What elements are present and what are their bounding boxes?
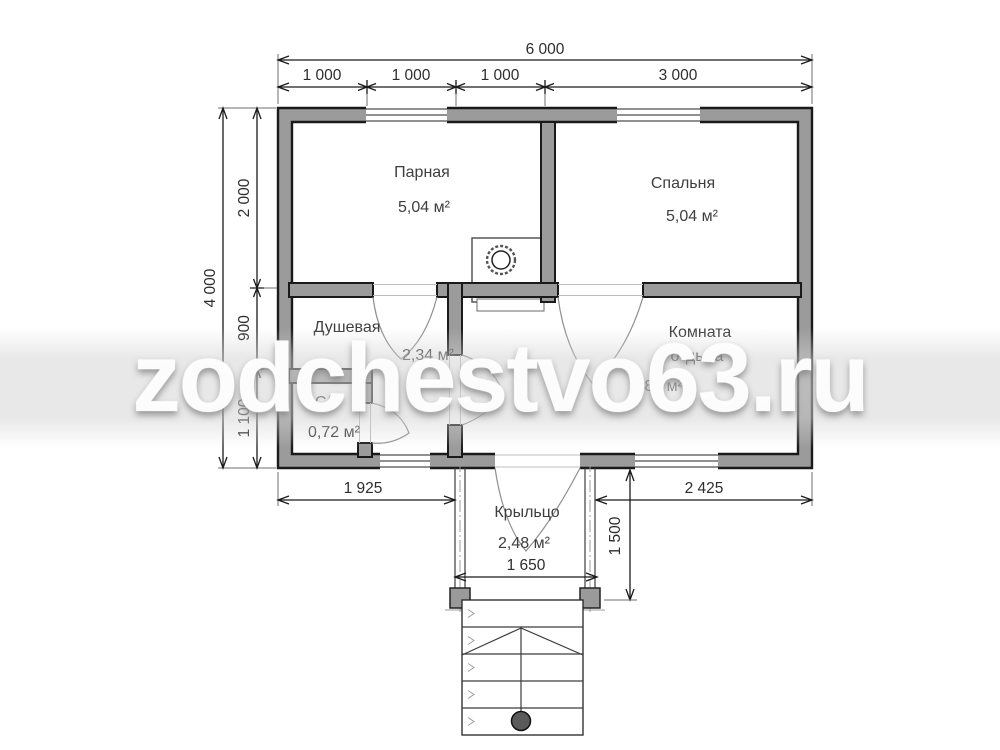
dim-total-height: 4 000 [202, 268, 219, 307]
stairs [462, 600, 583, 735]
dim-seg-1000a: 1 000 [303, 67, 342, 84]
room-label-kryltso: Крыльцо [494, 504, 559, 521]
dimension-bottom-right: 2 425 [596, 472, 812, 506]
dimension-bottom-left: 1 925 [278, 472, 455, 506]
window-top-right [617, 107, 700, 124]
window-bottom-left [380, 453, 430, 470]
room-area-kryltso: 2,48 м² [498, 535, 551, 552]
dim-1650: 1 650 [507, 557, 546, 574]
room-area-spalnya: 5,04 м² [666, 208, 719, 225]
stair-post-icon [512, 712, 531, 731]
dimension-porch-width: 1 650 [455, 557, 597, 581]
dim-seg-1000c: 1 000 [481, 67, 520, 84]
dim-seg-3000: 3 000 [659, 67, 698, 84]
room-area-parnaya: 5,04 м² [398, 199, 451, 216]
window-top-left [366, 107, 447, 124]
dim-2425: 2 425 [685, 480, 724, 497]
dim-seg-2000: 2 000 [236, 178, 253, 217]
dim-1500: 1 500 [607, 516, 624, 555]
dim-1925: 1 925 [344, 480, 383, 497]
dim-seg-1000b: 1 000 [392, 67, 431, 84]
room-label-parnaya: Парная [394, 164, 450, 181]
floor-plan-page: 6 000 1 000 1 000 1 000 3 000 4 000 2 00… [0, 0, 1000, 750]
dim-total-width: 6 000 [526, 41, 565, 58]
window-bottom-right [635, 453, 718, 470]
room-label-spalnya: Спальня [651, 175, 715, 192]
dimension-top-segments: 1 000 1 000 1 000 3 000 [278, 67, 812, 106]
dimension-porch-depth: 1 500 [604, 470, 637, 600]
stove-symbol [472, 238, 545, 311]
watermark: zodchestvo63.ru [0, 316, 1000, 440]
